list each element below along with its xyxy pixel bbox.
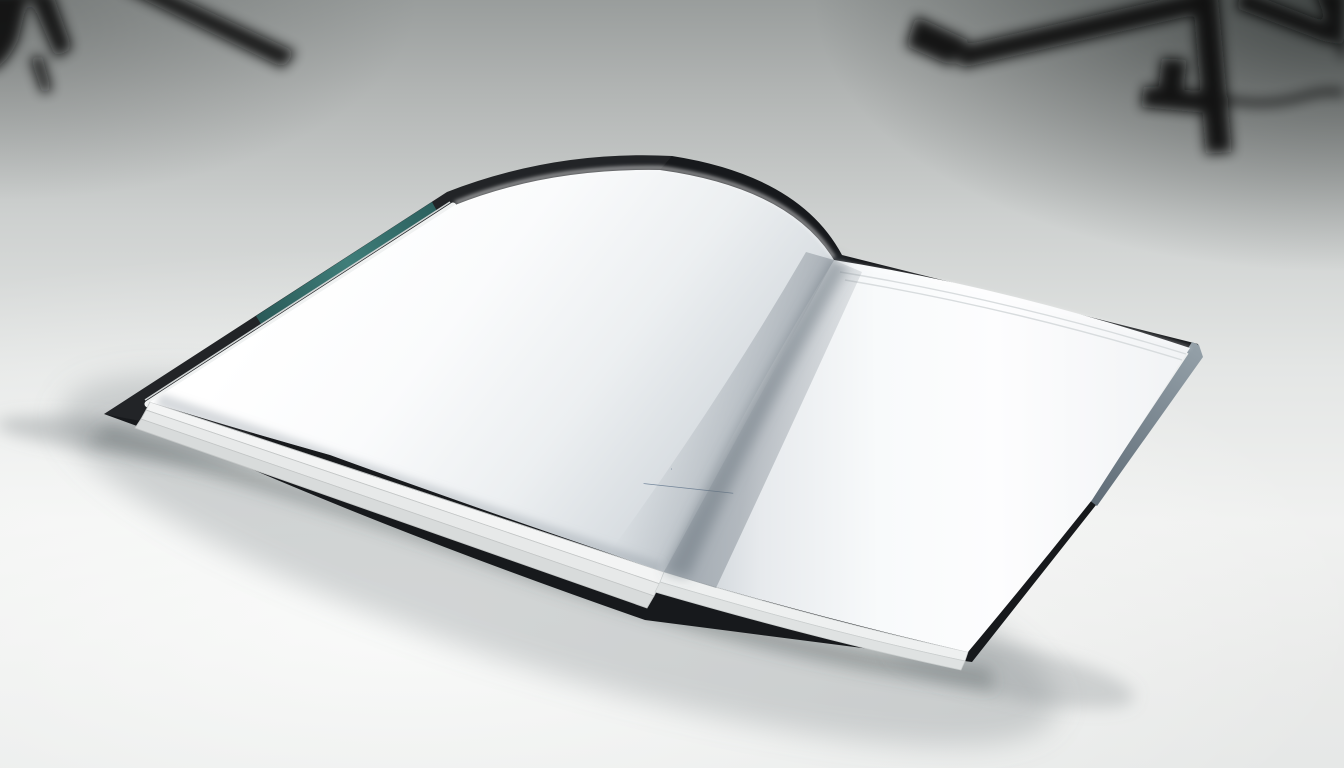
tripod-left-stub: [30, 56, 52, 93]
tripod-left-corner-blob: [0, 0, 30, 70]
photo-composition: [0, 0, 1344, 768]
studio-scene: [0, 0, 1344, 768]
book: [104, 155, 1203, 670]
light-stand-right: [906, 0, 1344, 154]
tripod-left-leg-long: [120, 0, 296, 68]
tripod-left-leg-short: [26, 0, 72, 58]
tripod-left: [0, 0, 296, 93]
stand-leg-left: [952, 0, 1206, 68]
stand-cable: [1206, 92, 1344, 103]
stand-pole: [1192, 0, 1232, 154]
